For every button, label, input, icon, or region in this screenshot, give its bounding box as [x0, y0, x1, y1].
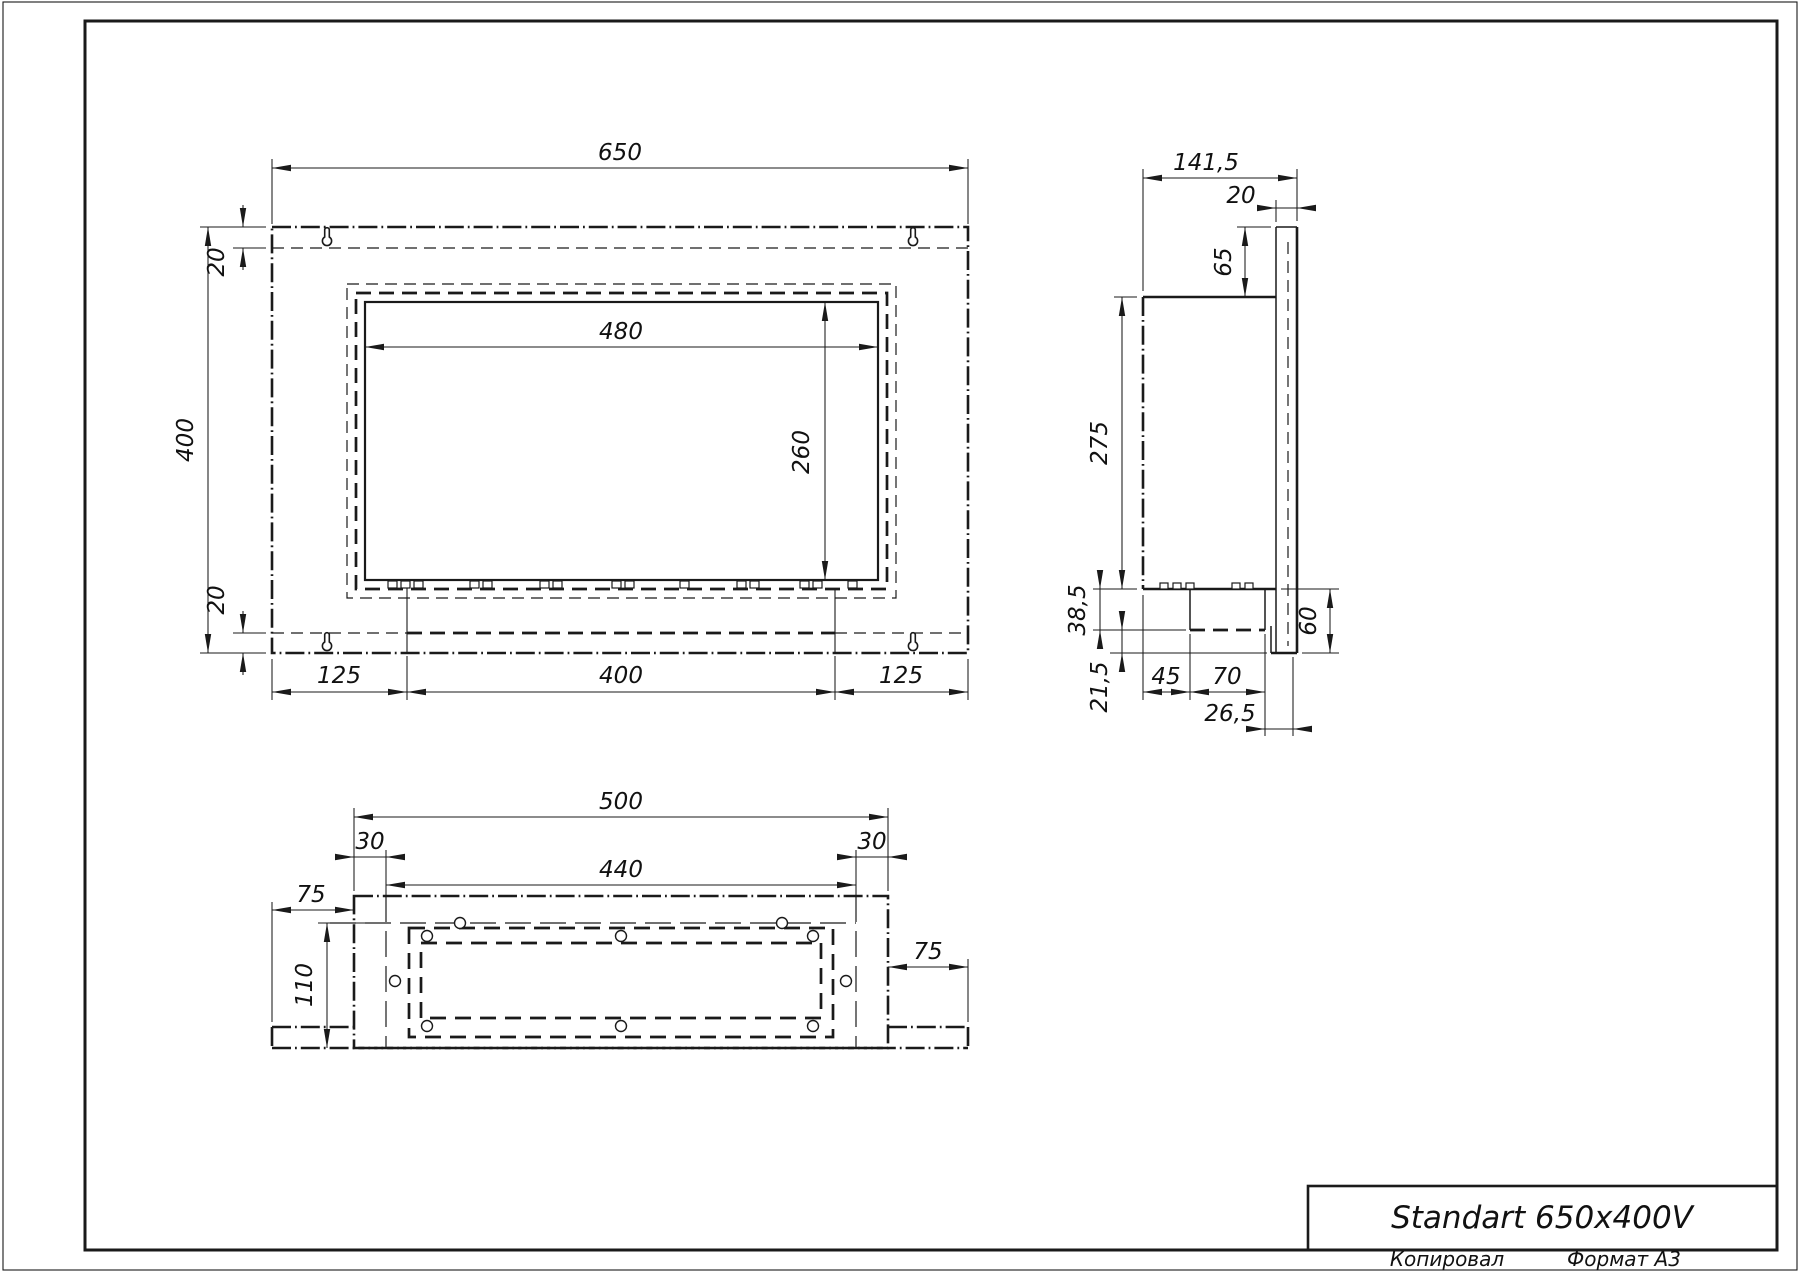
dim-bottom-margin-right: 30 [857, 829, 886, 855]
dim-side-bracket-height: 60 [1296, 606, 1322, 635]
dim-bottom-depth: 110 [292, 963, 318, 1007]
drawing-frame [85, 21, 1777, 1250]
dim-side-burner-width: 70 [1212, 664, 1241, 690]
format-label: Формат А3 [1567, 1247, 1681, 1271]
front-view: 650 400 20 20 480 260 [173, 140, 968, 700]
bottom-view: 500 30 30 440 75 75 [272, 789, 968, 1048]
dim-side-tab-height: 65 [1211, 247, 1237, 276]
bottom-dimensions: 500 30 30 440 75 75 [272, 789, 968, 1048]
title-block: Standart 650x400V Копировал Формат А3 [1308, 1186, 1777, 1271]
drawing-canvas: 650 400 20 20 480 260 [0, 0, 1800, 1273]
dim-side-right-offset: 26,5 [1204, 701, 1255, 727]
keyhole-slot-icon [908, 633, 917, 651]
keyhole-slot-icon [908, 228, 917, 246]
screw-holes [390, 918, 852, 1032]
dim-front-opening-width: 480 [599, 319, 643, 345]
dim-bottom-width: 500 [599, 789, 643, 815]
burner-notches [388, 581, 857, 588]
drawing-title: Standart 650x400V [1391, 1200, 1696, 1236]
drawing-sheet: 650 400 20 20 480 260 [0, 0, 1800, 1273]
dim-side-plate-thickness: 20 [1226, 183, 1255, 209]
dim-side-inset-left: 45 [1151, 664, 1180, 690]
dim-bottom-inner-width: 440 [599, 857, 643, 883]
dim-front-top-inset: 20 [204, 247, 230, 276]
dim-front-bottom-inset: 20 [204, 585, 230, 614]
dim-side-body-height: 275 [1087, 421, 1113, 465]
keyhole-slot-icon [322, 633, 331, 651]
dim-front-foot-right: 125 [879, 663, 923, 689]
side-view: 141,5 20 65 275 38,5 [1065, 150, 1339, 736]
dim-side-depth: 141,5 [1173, 150, 1239, 176]
dim-front-foot-left: 125 [317, 663, 361, 689]
front-dimensions: 650 400 20 20 480 260 [173, 140, 968, 700]
dim-side-foot-height: 21,5 [1087, 661, 1113, 712]
keyhole-slot-icon [322, 228, 331, 246]
bottom-frame-hidden-inner [421, 943, 821, 1018]
dim-front-opening-height: 260 [789, 430, 815, 474]
dim-front-width: 650 [598, 140, 642, 166]
dim-front-foot-center: 400 [599, 663, 643, 689]
dim-front-height: 400 [173, 418, 199, 462]
dim-side-lower-height: 38,5 [1065, 584, 1091, 635]
dim-bottom-wing-left: 75 [296, 882, 325, 908]
dim-bottom-wing-right: 75 [913, 939, 942, 965]
copied-label: Копировал [1390, 1247, 1504, 1271]
dim-bottom-margin-left: 30 [355, 829, 384, 855]
